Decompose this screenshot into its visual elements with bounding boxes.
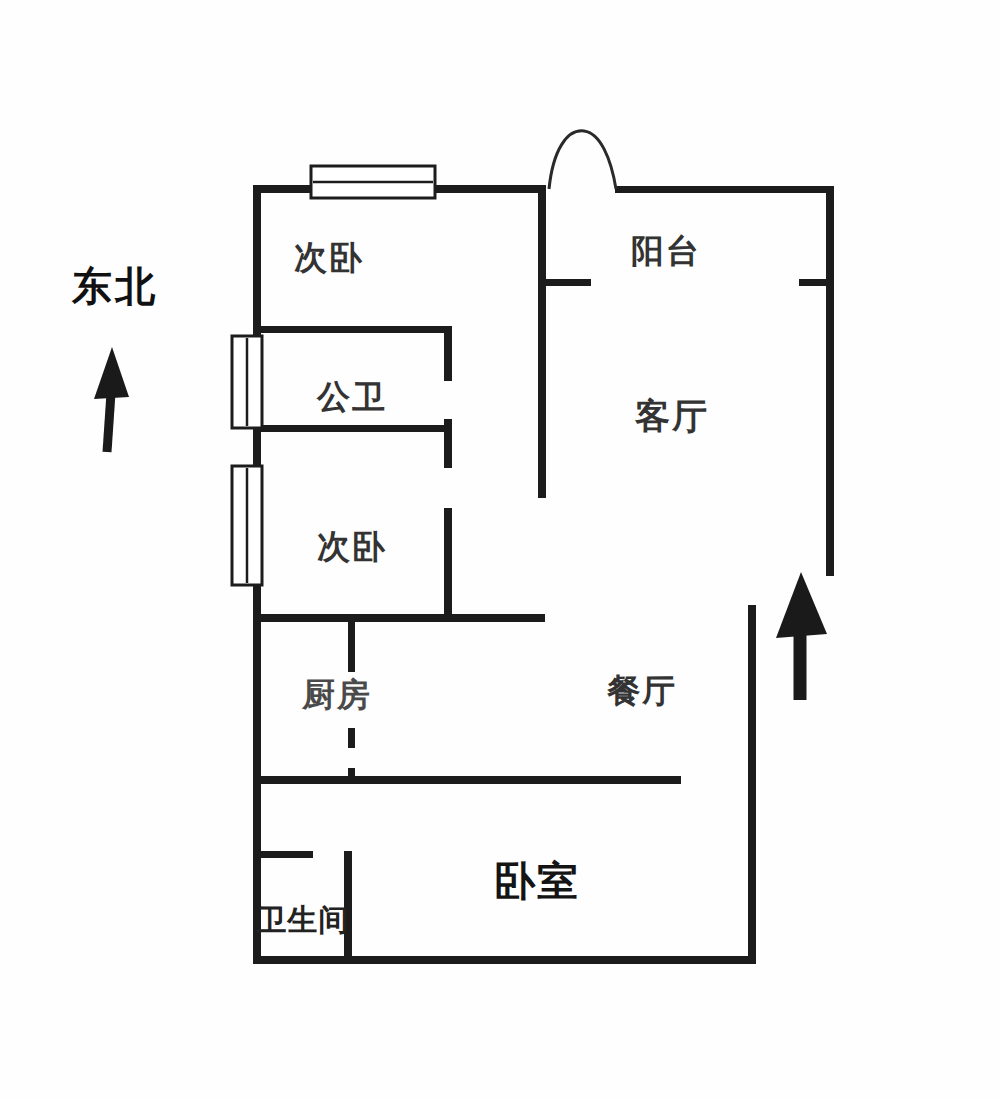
- dining-right-wall: [748, 605, 756, 964]
- room-label-bathroom-public: 公卫: [317, 380, 387, 413]
- kitchen-divider-b: [348, 728, 355, 748]
- room-label-dining-room: 餐厅: [607, 674, 677, 707]
- balcony-top-wall: [615, 186, 833, 193]
- bottom-outer-wall: [253, 956, 756, 964]
- bathroom-top-wall: [257, 851, 313, 858]
- floorplan: 东北 次卧 阳台 公卫 客厅 次卧 厨房 餐厅 卧室 卫生间: [0, 0, 1000, 1098]
- bathroom-public-right-b: [444, 419, 452, 468]
- room-label-living-room: 客厅: [635, 399, 709, 434]
- dining-bedroom-divider: [253, 776, 681, 784]
- compass-arrow-head: [94, 347, 129, 399]
- compass-arrow-shaft: [107, 393, 111, 452]
- bedroom-mid-bottom-wall: [253, 614, 545, 622]
- bathroom-public-bottom: [253, 425, 452, 432]
- balcony-divider-right: [799, 279, 833, 286]
- corridor-left-wall: [538, 185, 546, 498]
- balcony-divider-left: [541, 279, 591, 286]
- bathroom-public-right-a: [444, 326, 452, 381]
- kitchen-divider-a: [348, 622, 355, 672]
- bathroom-public-top: [253, 326, 452, 333]
- room-label-bedroom-secondary-mid: 次卧: [317, 530, 387, 563]
- room-label-bathroom: 卫生间: [257, 905, 350, 935]
- room-label-balcony: 阳台: [631, 234, 701, 267]
- entrance-arrow-head: [776, 572, 827, 638]
- room-label-bedroom-secondary-top: 次卧: [294, 241, 364, 274]
- compass-northeast-label: 东北: [72, 266, 158, 306]
- room-label-kitchen: 厨房: [302, 678, 372, 711]
- room-label-bedroom-master: 卧室: [494, 861, 580, 902]
- right-outer-wall: [826, 186, 834, 576]
- balcony-door-arc: [549, 131, 616, 189]
- bedroom-mid-right-wall: [444, 508, 452, 622]
- floorplan-drawing: [0, 0, 1000, 1098]
